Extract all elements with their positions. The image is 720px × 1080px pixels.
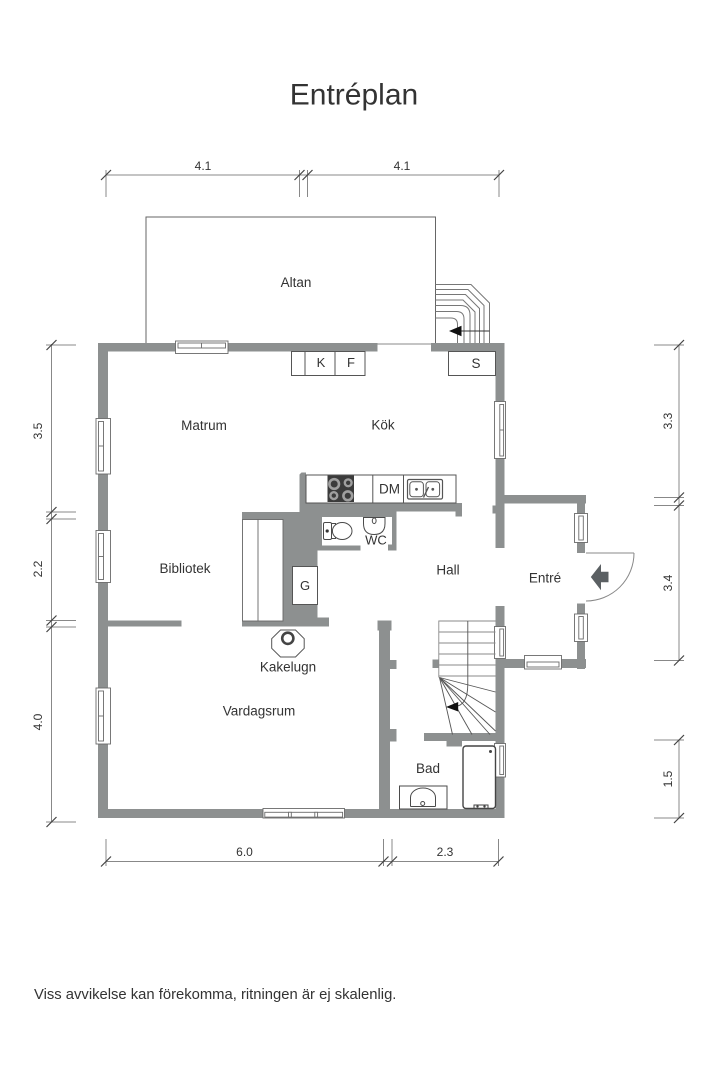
svg-text:2.3: 2.3: [437, 845, 454, 859]
svg-text:G: G: [300, 578, 310, 593]
svg-text:Bad: Bad: [416, 761, 440, 776]
svg-text:4.1: 4.1: [195, 159, 212, 173]
svg-text:4.1: 4.1: [394, 159, 411, 173]
svg-text:WC: WC: [365, 533, 387, 548]
svg-text:4.0: 4.0: [31, 713, 45, 730]
svg-text:Entréplan: Entréplan: [290, 79, 418, 112]
svg-text:Kök: Kök: [371, 418, 395, 433]
svg-text:3.5: 3.5: [31, 422, 45, 439]
svg-text:1.5: 1.5: [661, 770, 675, 787]
svg-text:Viss avvikelse kan förekomma,: Viss avvikelse kan förekomma, ritningen …: [34, 987, 396, 1003]
svg-text:Entré: Entré: [529, 571, 561, 586]
svg-text:6.0: 6.0: [236, 845, 253, 859]
svg-text:Bibliotek: Bibliotek: [159, 561, 210, 576]
svg-text:Kakelugn: Kakelugn: [260, 660, 316, 675]
svg-text:Vardagsrum: Vardagsrum: [223, 704, 296, 719]
svg-text:3.4: 3.4: [661, 574, 675, 591]
svg-text:3.3: 3.3: [661, 412, 675, 429]
svg-text:K: K: [317, 355, 326, 370]
svg-text:DM: DM: [379, 482, 400, 497]
svg-text:F: F: [347, 355, 355, 370]
svg-text:Altan: Altan: [281, 275, 312, 290]
svg-text:2.2: 2.2: [31, 560, 45, 577]
svg-text:Hall: Hall: [436, 563, 459, 578]
svg-text:Matrum: Matrum: [181, 418, 227, 433]
svg-text:S: S: [471, 356, 480, 371]
